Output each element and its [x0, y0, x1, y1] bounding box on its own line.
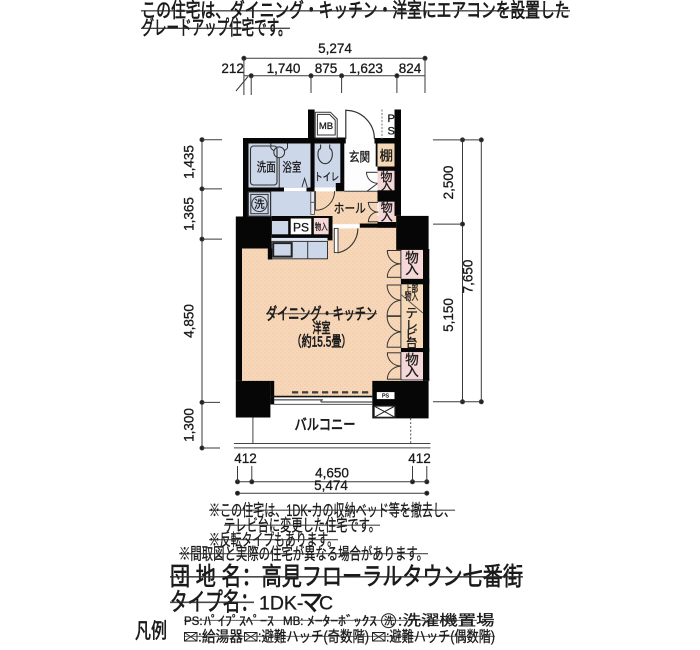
svg-text:824: 824 — [399, 61, 422, 76]
svg-text:1,740: 1,740 — [267, 61, 301, 76]
svg-text:物入: 物入 — [405, 290, 419, 303]
svg-text:洗面: 洗面 — [257, 161, 276, 175]
svg-text:1,623: 1,623 — [349, 61, 383, 76]
svg-text:5,150: 5,150 — [441, 298, 456, 332]
svg-text:入: 入 — [405, 262, 419, 277]
svg-text:5,274: 5,274 — [318, 41, 352, 56]
svg-text:C: C — [319, 593, 333, 615]
svg-text:台: 台 — [405, 336, 417, 351]
svg-text::洗濯機置場: :洗濯機置場 — [398, 613, 495, 630]
svg-text:212: 212 — [221, 61, 244, 76]
svg-text:入: 入 — [380, 179, 392, 193]
svg-text::給湯器: :給湯器 — [198, 629, 243, 646]
svg-text:入: 入 — [405, 364, 419, 379]
svg-text:トイレ: トイレ — [315, 172, 340, 184]
svg-text:412: 412 — [408, 451, 431, 466]
svg-text:ﾊﾟｲﾌﾟｽﾍﾟｰｽ: ﾊﾟｲﾌﾟｽﾍﾟｰｽ — [204, 614, 275, 629]
svg-text:5,474: 5,474 — [314, 478, 348, 493]
svg-text:浴室: 浴室 — [282, 160, 301, 175]
svg-text:洗: 洗 — [384, 616, 394, 628]
svg-text:MB:: MB: — [283, 616, 303, 628]
svg-text:1,435: 1,435 — [182, 145, 197, 179]
svg-text:凡例: 凡例 — [135, 620, 167, 643]
svg-text:PS:: PS: — [184, 616, 203, 628]
svg-text::避難ハッチ(奇数階): :避難ハッチ(奇数階) — [258, 629, 369, 646]
svg-text:棚: 棚 — [380, 149, 394, 164]
svg-text:1,300: 1,300 — [182, 408, 197, 442]
svg-text:入: 入 — [381, 210, 393, 224]
svg-text:1DK-: 1DK- — [259, 593, 303, 615]
svg-text:2,500: 2,500 — [441, 166, 456, 200]
svg-text:物入: 物入 — [315, 221, 328, 232]
svg-text::避難ハッチ(偶数階): :避難ハッチ(偶数階) — [386, 629, 495, 646]
svg-text:洗: 洗 — [254, 199, 265, 211]
svg-text:MB: MB — [319, 121, 333, 132]
svg-text:4,850: 4,850 — [182, 304, 197, 338]
svg-text:ﾒｰﾀｰﾎﾞｯｸｽ: ﾒｰﾀｰﾎﾞｯｸｽ — [307, 614, 378, 629]
svg-text:P: P — [388, 113, 395, 125]
svg-text:412: 412 — [234, 451, 257, 466]
svg-text:875: 875 — [315, 61, 338, 76]
svg-text:（約15.5畳）: （約15.5畳） — [292, 334, 352, 351]
svg-text:1,365: 1,365 — [182, 197, 197, 231]
svg-text:玄関: 玄関 — [349, 149, 370, 164]
svg-text:PS: PS — [293, 221, 309, 235]
svg-text:ホール: ホール — [334, 201, 366, 216]
svg-text:S: S — [388, 126, 395, 138]
svg-text:7,650: 7,650 — [461, 260, 476, 294]
svg-text:バルコニー: バルコニー — [295, 417, 356, 434]
svg-text:PS: PS — [382, 394, 389, 400]
